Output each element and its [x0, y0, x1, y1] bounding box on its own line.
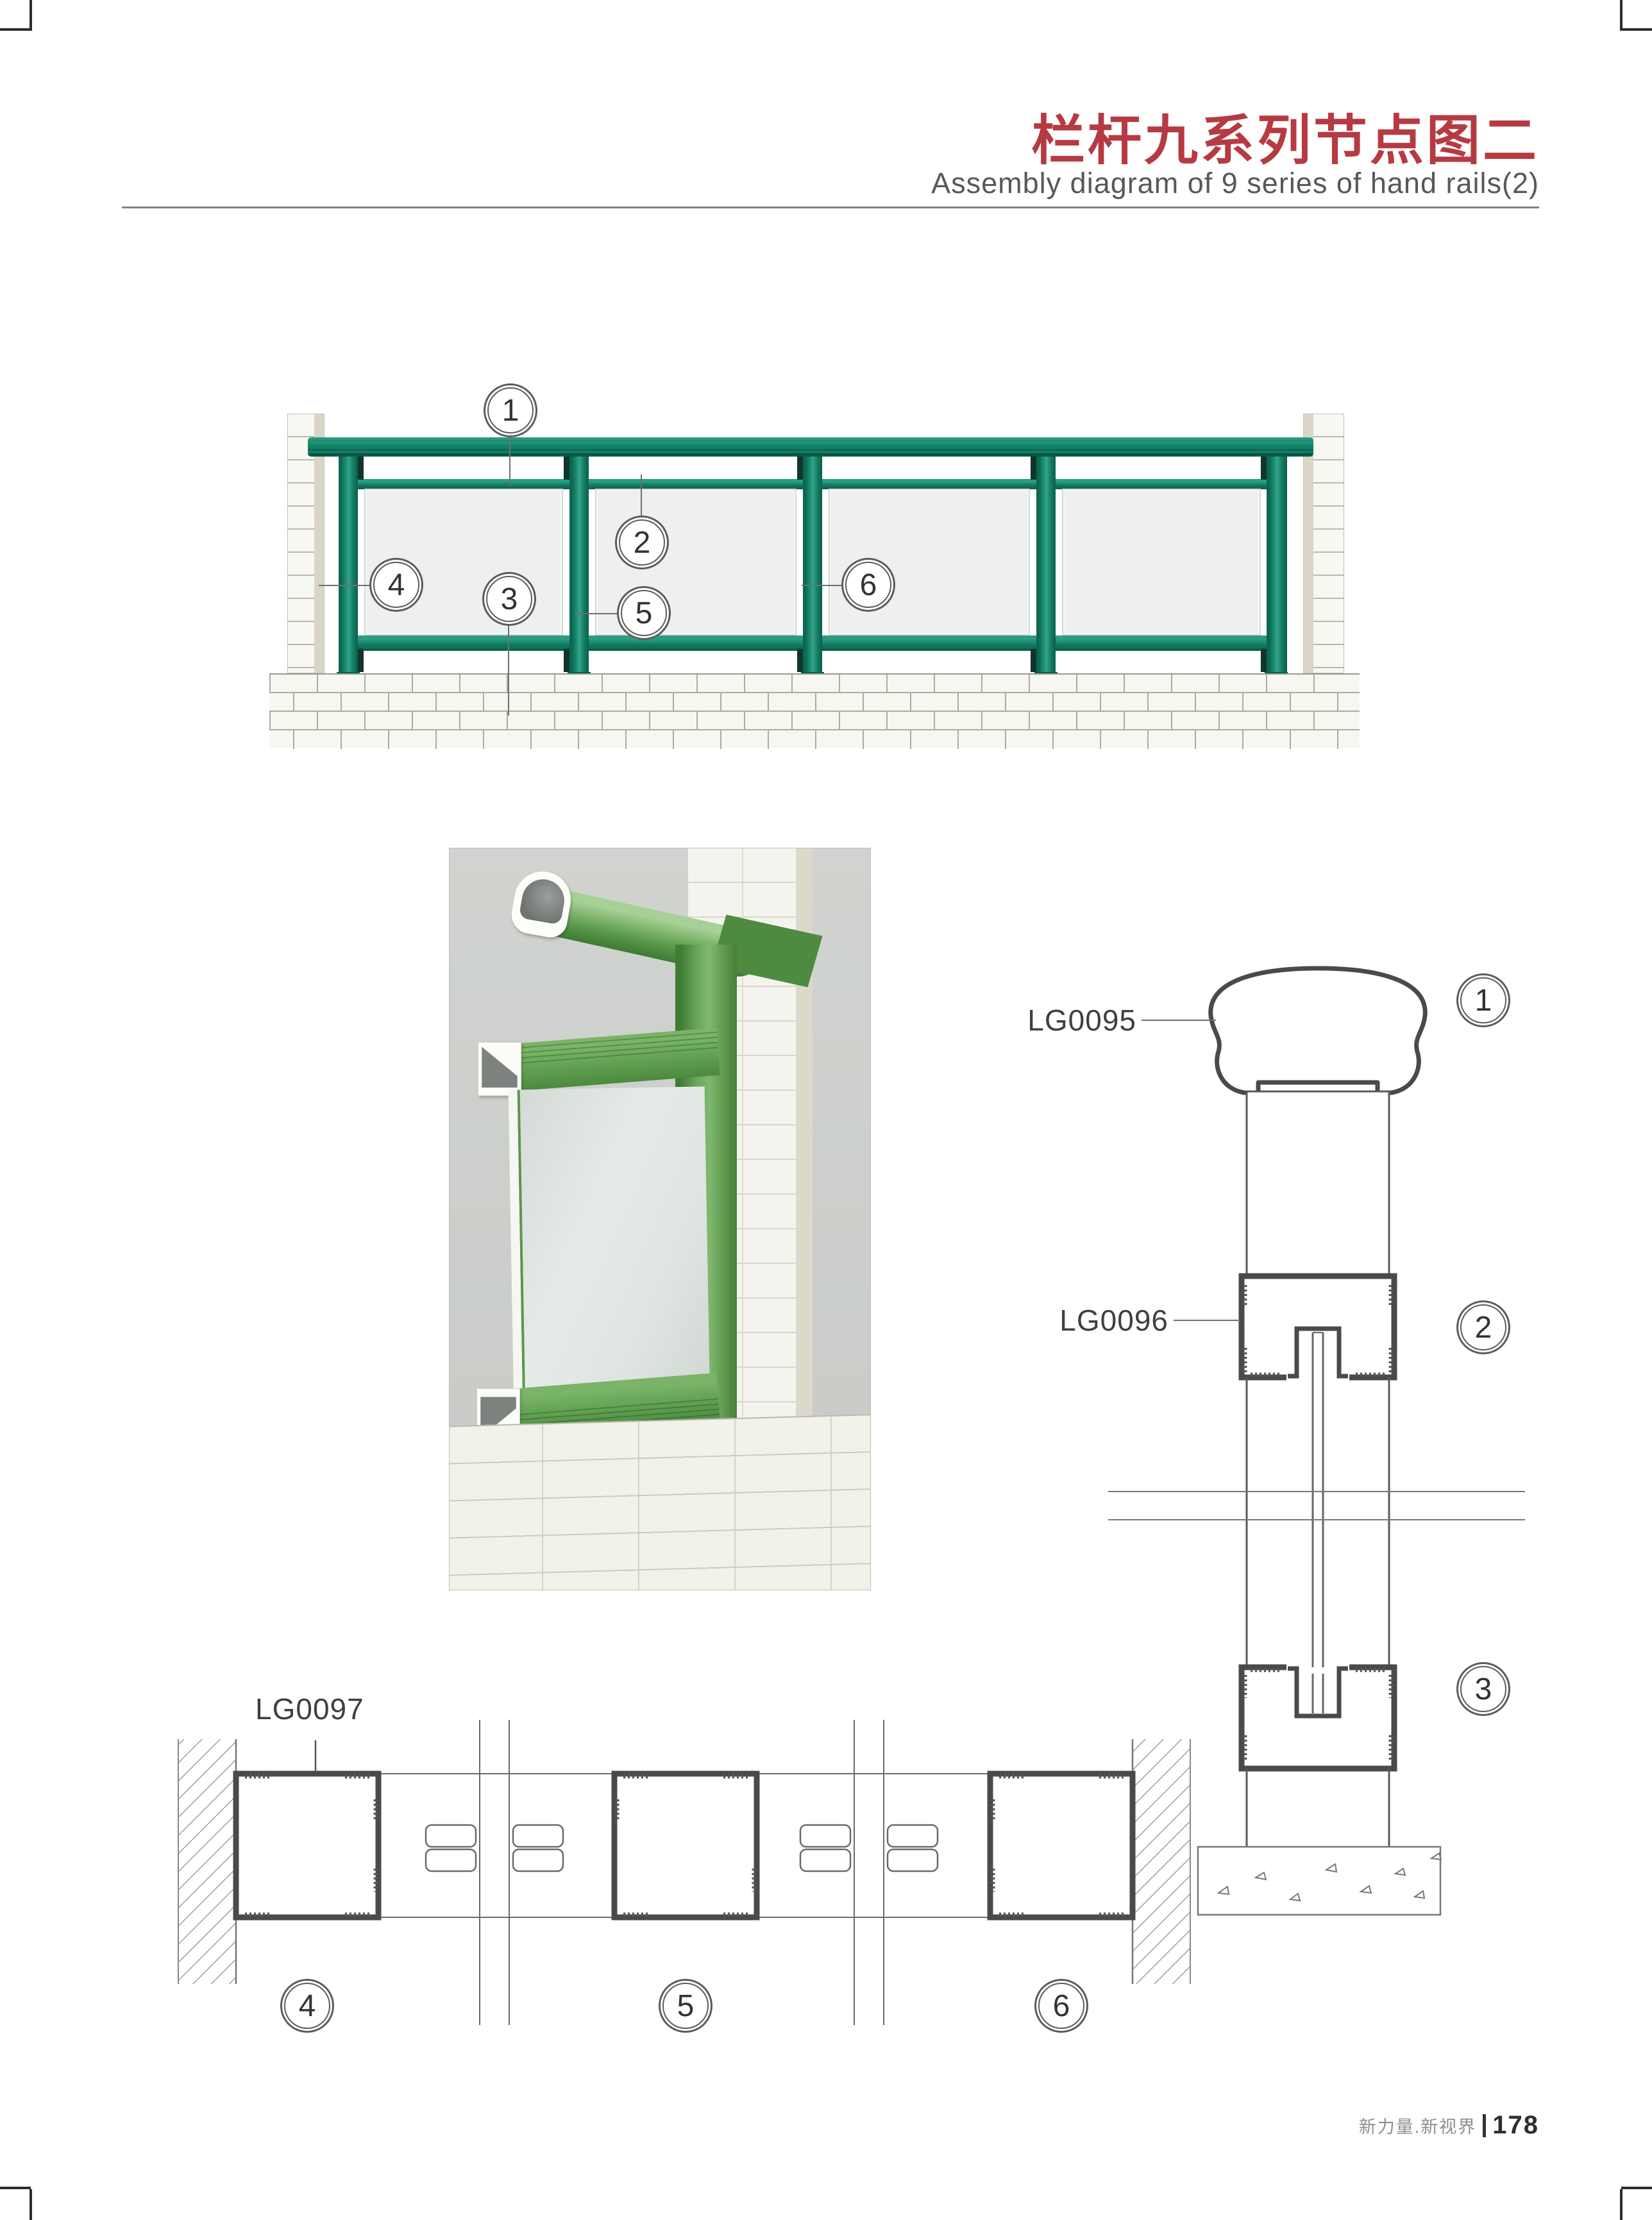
section-callout-3: 3: [1456, 1662, 1510, 1716]
callout-number: 4: [299, 1989, 316, 2024]
part-label-lg0095: LG0095: [1002, 1003, 1136, 1038]
plan-callout-4: 4: [280, 1979, 334, 2033]
leader-line: [1142, 1020, 1216, 1021]
callout-number: 2: [1475, 1310, 1492, 1345]
callout-number: 1: [1475, 983, 1492, 1018]
plan-callout-5: 5: [659, 1979, 712, 2033]
brand-slogan: 新力量.新视界: [1359, 2113, 1477, 2138]
plan-callout-6: 6: [1034, 1979, 1088, 2033]
detail-lineart: [0, 0, 1652, 2220]
catalog-page: 栏杆九系列节点图二 Assembly diagram of 9 series o…: [0, 0, 1652, 2220]
leader-line: [1174, 1320, 1240, 1321]
callout-number: 5: [677, 1989, 695, 2024]
part-label-lg0097: LG0097: [255, 1692, 364, 1726]
page-footer: 新力量.新视界 178: [1359, 2111, 1539, 2140]
callout-number: 6: [1053, 1989, 1070, 2024]
footer-divider: [1483, 2114, 1486, 2137]
callout-number: 3: [1475, 1672, 1492, 1707]
section-callout-1: 1: [1456, 973, 1510, 1027]
page-number: 178: [1492, 2111, 1539, 2140]
section-callout-2: 2: [1456, 1300, 1510, 1354]
part-label-lg0096: LG0096: [1034, 1303, 1168, 1338]
